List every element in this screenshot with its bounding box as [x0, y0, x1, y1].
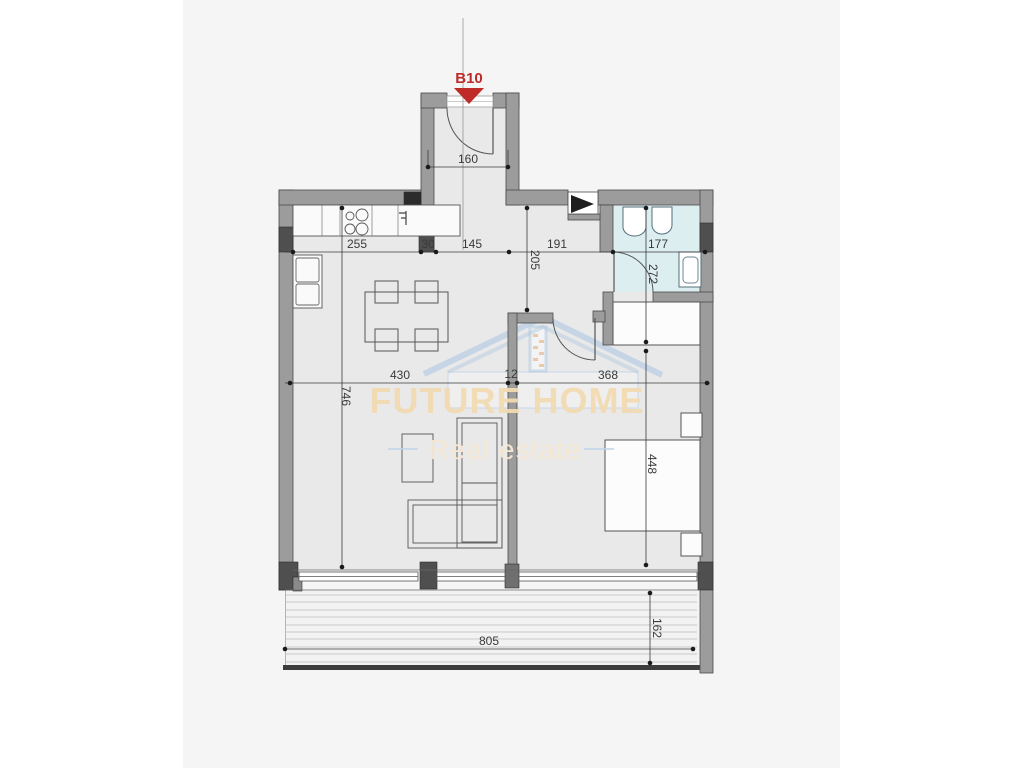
column-bath-right — [700, 223, 713, 252]
dim-kitchen-width: 255 — [347, 238, 367, 250]
wall-top-left — [279, 190, 422, 205]
wall-entry-topleft — [421, 93, 447, 108]
column-left-wall — [279, 227, 293, 252]
dim-terrace-width: 805 — [479, 635, 499, 647]
window-wall — [285, 570, 700, 590]
dim-bedroom-width: 368 — [598, 369, 618, 381]
column-window-mid — [420, 562, 437, 589]
dim-bathroom-depth: 272 — [647, 264, 659, 284]
wardrobe — [613, 302, 700, 345]
dim-terrace-depth: 162 — [651, 618, 663, 638]
dim-hall-depth: 205 — [529, 250, 541, 270]
nightstand — [681, 413, 702, 437]
unit-label: B10 — [455, 71, 483, 86]
wall-shaft-bottom — [568, 214, 600, 220]
sink — [623, 207, 646, 236]
terrace-railing — [283, 665, 713, 670]
wall-bathroom-left — [600, 205, 613, 252]
dim-wall-seg: 30 — [421, 238, 434, 250]
column-window-divider — [505, 564, 519, 588]
wall-top-mid — [506, 190, 568, 205]
wall-bathroom-top — [598, 190, 713, 205]
dim-entry-hall-width: 145 — [462, 238, 482, 250]
dim-hall-width: 191 — [547, 238, 567, 250]
dim-living-width: 430 — [390, 369, 410, 381]
nightstand — [681, 533, 702, 556]
watermark-title: FUTURE HOME — [370, 383, 645, 419]
column-window-right — [698, 562, 713, 590]
dim-bedroom-depth: 448 — [646, 454, 658, 474]
kitchen-counter — [293, 205, 460, 236]
dim-entry-width: 160 — [458, 153, 478, 165]
terrace-floor — [285, 590, 698, 666]
toilet — [652, 207, 672, 234]
shaft-symbol — [568, 192, 598, 214]
dim-bathroom-width: 177 — [648, 238, 668, 250]
wall-bathroom-bottom — [653, 292, 713, 302]
watermark-dash-left — [388, 448, 418, 450]
wall-entry-right — [506, 93, 519, 205]
watermark-dash-right — [584, 448, 614, 450]
dim-living-depth: 746 — [340, 386, 352, 406]
floor-plan-page: { "unit": { "label": "B10" }, "watermark… — [0, 0, 1024, 768]
dim-partition: 12 — [504, 368, 517, 380]
watermark-subtitle: Real estate — [429, 436, 582, 464]
column-counter-end — [404, 192, 421, 205]
